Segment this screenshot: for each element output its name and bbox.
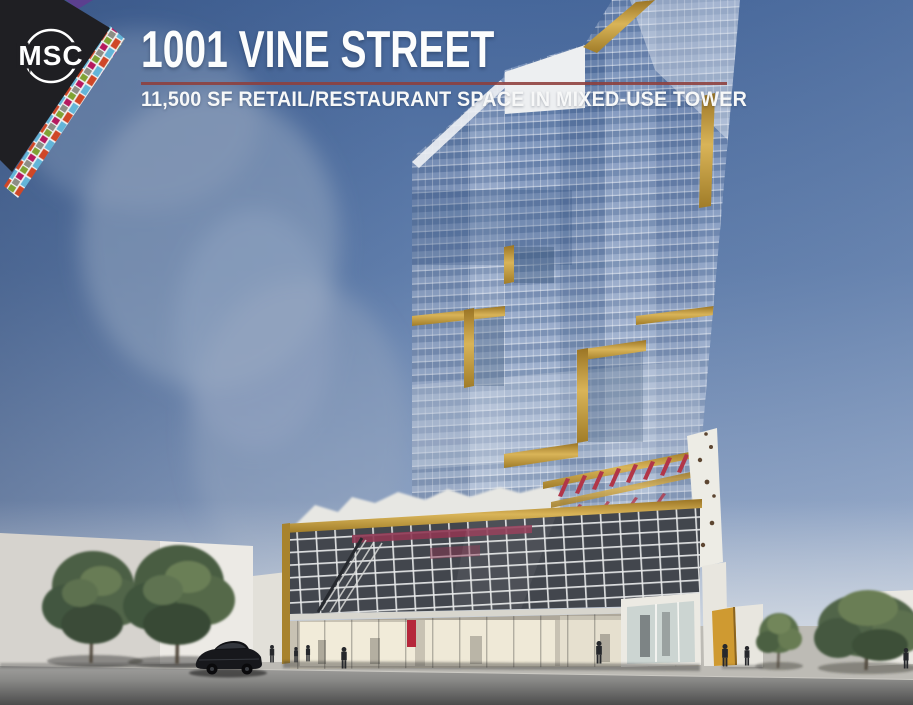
gold-corner-trim [282, 523, 290, 664]
logo-text: MSC [18, 40, 83, 71]
flyer-page: MSC 1001 VINE STREET 11,500 SF RETAIL/RE… [0, 0, 913, 705]
building-rendering [0, 0, 913, 705]
logo-diamond [0, 0, 110, 172]
msc-logo: MSC [0, 0, 134, 205]
rear-white-block [253, 572, 287, 662]
corner-entry [621, 593, 701, 667]
